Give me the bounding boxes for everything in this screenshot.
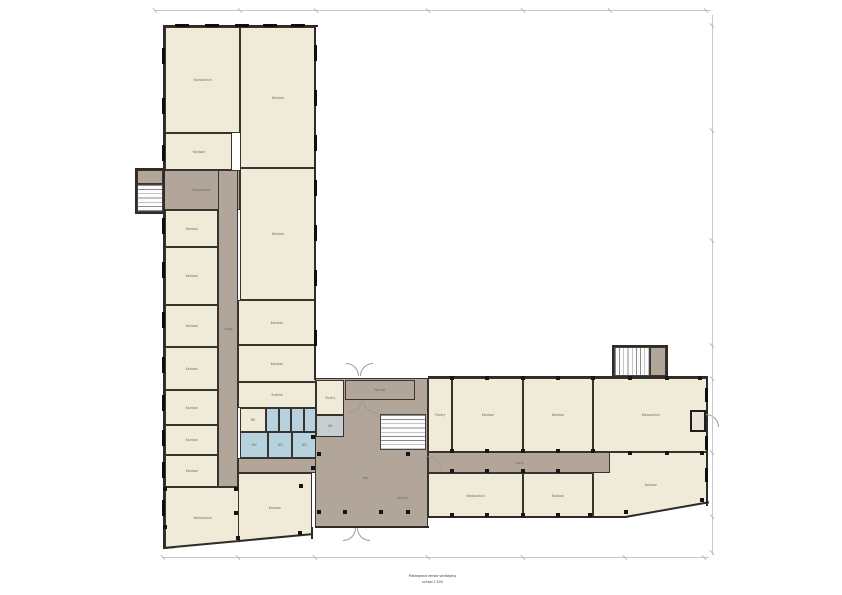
column: [700, 451, 704, 455]
room-label: Kantoor: [185, 438, 197, 441]
stair-ne: [614, 347, 650, 376]
column: [406, 452, 410, 456]
column: [298, 531, 302, 535]
vestibule-north: Portaal: [345, 380, 415, 400]
floor-plan-canvas: Plattegrond eerste verdieping schaal 1:2…: [0, 0, 842, 595]
caption-line-1: Plattegrond eerste verdieping: [367, 574, 499, 579]
door-arc: [360, 363, 373, 376]
column: [450, 376, 454, 380]
room-label: Kantoor: [185, 324, 197, 327]
window-marker: [314, 45, 318, 61]
window-marker: [314, 330, 318, 346]
column: [521, 449, 525, 453]
room-label: Kantoor: [271, 362, 283, 365]
window-marker: [162, 357, 166, 373]
room-label: Trappenhuis: [192, 188, 211, 191]
window-marker: [263, 24, 277, 28]
room-kantoor-r3: Kantoor: [523, 378, 593, 452]
room-label: Ruimte: [271, 393, 282, 396]
room-label: Kantoor: [185, 367, 197, 370]
window-marker: [705, 468, 709, 482]
lift: Lift: [316, 415, 344, 437]
column: [700, 498, 704, 502]
room-label: Kantoor: [185, 227, 197, 230]
room-label: Kantoor: [185, 406, 197, 409]
column: [299, 484, 303, 488]
window-marker: [314, 225, 318, 241]
stair-west: [137, 184, 163, 212]
window-marker: [314, 180, 318, 196]
room-label: Kantoor: [185, 274, 197, 277]
column: [485, 376, 489, 380]
free-label: Hal: [363, 476, 368, 479]
room-label: WC: [277, 443, 282, 446]
column: [450, 469, 454, 473]
room-kantoortuin-rb1: Kantoortuin: [428, 473, 523, 518]
door-arc: [357, 528, 370, 541]
room-label: Kantoortuin: [466, 494, 484, 497]
room-label: Kantoor: [272, 96, 284, 99]
room-werkkast: MK: [240, 408, 266, 432]
column: [450, 513, 454, 517]
column: [406, 510, 410, 514]
room-label: MK: [251, 418, 256, 421]
stair-west-landing: [137, 170, 163, 184]
window-marker: [162, 395, 166, 411]
window-marker: [205, 24, 219, 28]
column: [624, 510, 628, 514]
column: [311, 435, 315, 439]
window-marker: [162, 262, 166, 278]
room-label: Gang: [515, 461, 523, 464]
room-label: Kantoor: [552, 413, 564, 416]
column: [485, 449, 489, 453]
room-label: Kantoor: [552, 494, 564, 497]
column: [665, 451, 669, 455]
column: [379, 510, 383, 514]
room-kantoor-w6: Kantoor: [165, 390, 218, 425]
window-marker: [314, 135, 318, 151]
wc-room-2: WC: [268, 432, 292, 458]
room-label: Kantoor: [185, 469, 197, 472]
corridor-east: Gang: [428, 452, 610, 473]
room-kantoor-e2: Kantoor: [238, 345, 316, 382]
column: [521, 513, 525, 517]
window-marker: [162, 462, 166, 478]
caption-line-2: schaal 1:200: [367, 580, 499, 585]
corridor-toilet: [238, 458, 316, 473]
column: [234, 487, 238, 491]
column: [343, 510, 347, 514]
column: [311, 466, 315, 470]
room-label: Kantoor: [269, 506, 281, 509]
window-marker: [162, 500, 166, 516]
room-kantoortuin-nw: Kantoortuin: [165, 27, 240, 133]
room-kantoor-w1: Kantoor: [165, 133, 232, 170]
wc-room-1: WC: [240, 432, 268, 458]
window-marker: [162, 312, 166, 328]
window-marker: [162, 98, 166, 114]
column: [698, 376, 702, 380]
column: [556, 469, 560, 473]
column: [665, 376, 669, 380]
column: [236, 536, 240, 540]
room-ruimte: Ruimte: [238, 382, 316, 408]
column: [485, 513, 489, 517]
wc-stall-2: [279, 408, 292, 432]
wall: [612, 345, 668, 347]
room-label: Kantoor: [481, 413, 493, 416]
room-kantoor-ne-1: Kantoor: [240, 27, 316, 168]
room-pantry-r1: Pantry: [428, 378, 452, 452]
room-kantoor-w8: Kantoor: [165, 455, 218, 487]
room-label: Kantoortuin: [193, 78, 211, 81]
column: [317, 510, 321, 514]
stair-ne-landing: [650, 347, 666, 376]
door-arc: [343, 528, 356, 541]
wall: [315, 526, 429, 528]
room-kantoor-rb3: Kantoor: [593, 452, 708, 518]
column: [163, 487, 167, 491]
room-label: Kantoor: [644, 483, 656, 486]
room-label: WC: [251, 443, 256, 446]
wall: [593, 516, 627, 518]
window-marker: [705, 436, 709, 450]
column: [556, 449, 560, 453]
wc-stall-1: [266, 408, 279, 432]
wall: [314, 25, 316, 380]
room-label: Kantoortuin: [641, 413, 659, 416]
column: [521, 376, 525, 380]
room-kantoor-w2: Kantoor: [165, 210, 218, 247]
column: [591, 376, 595, 380]
door-arc: [346, 363, 359, 376]
room-label: Portaal: [375, 388, 386, 391]
window-marker: [705, 388, 709, 402]
room-kantoor-r2: Kantoor: [452, 378, 523, 452]
room-label: Kantoor: [272, 232, 284, 235]
room-label: WC: [301, 443, 306, 446]
window-marker: [314, 90, 318, 106]
room-kantoor-ne-2: Kantoor: [240, 168, 316, 300]
corridor-main-west: Gang: [218, 170, 238, 487]
dimension-line: [712, 15, 713, 555]
wall: [135, 168, 165, 170]
window-marker: [175, 24, 189, 28]
dimension-line: [163, 557, 709, 558]
column: [556, 513, 560, 517]
column: [628, 376, 632, 380]
window-marker: [314, 270, 318, 286]
room-kantoor-e1: Kantoor: [238, 300, 316, 345]
window-marker: [162, 48, 166, 64]
room-label: Kantoortuin: [193, 516, 211, 519]
entry-east: [690, 410, 706, 432]
room-kantoor-w3: Kantoor: [165, 247, 218, 305]
window-marker: [291, 24, 305, 28]
column: [163, 525, 167, 529]
room-kantoor-w5: Kantoor: [165, 347, 218, 390]
column: [588, 513, 592, 517]
wc-stall-3: [291, 408, 304, 432]
room-label: Pantry: [325, 396, 335, 399]
free-label: Entree: [397, 496, 407, 499]
column: [591, 449, 595, 453]
room-kantoor-w4: Kantoor: [165, 305, 218, 347]
window-marker: [235, 24, 249, 28]
column: [450, 449, 454, 453]
window-marker: [162, 145, 166, 161]
column: [628, 451, 632, 455]
window-marker: [162, 218, 166, 234]
wall: [135, 212, 163, 214]
room-label: Kantoor: [192, 150, 204, 153]
wall: [666, 345, 668, 378]
column: [234, 511, 238, 515]
drawing-caption: Plattegrond eerste verdieping schaal 1:2…: [350, 573, 515, 585]
wall: [135, 168, 137, 214]
column: [521, 469, 525, 473]
stair-main: [380, 414, 426, 450]
column: [485, 469, 489, 473]
room-kantoortuin-sw: Kantoortuin: [165, 487, 240, 549]
room-label: Kantoor: [271, 321, 283, 324]
room-kantoor-w7: Kantoor: [165, 425, 218, 455]
room-label: Gang: [224, 327, 232, 330]
room-kantoor-rb2: Kantoor: [523, 473, 593, 518]
column: [556, 376, 560, 380]
room-label: Lift: [328, 424, 333, 427]
column: [317, 452, 321, 456]
room-label: Pantry: [435, 413, 445, 416]
room-pantry-hall: Pantry: [316, 380, 344, 415]
wall: [612, 345, 614, 378]
window-marker: [162, 430, 166, 446]
